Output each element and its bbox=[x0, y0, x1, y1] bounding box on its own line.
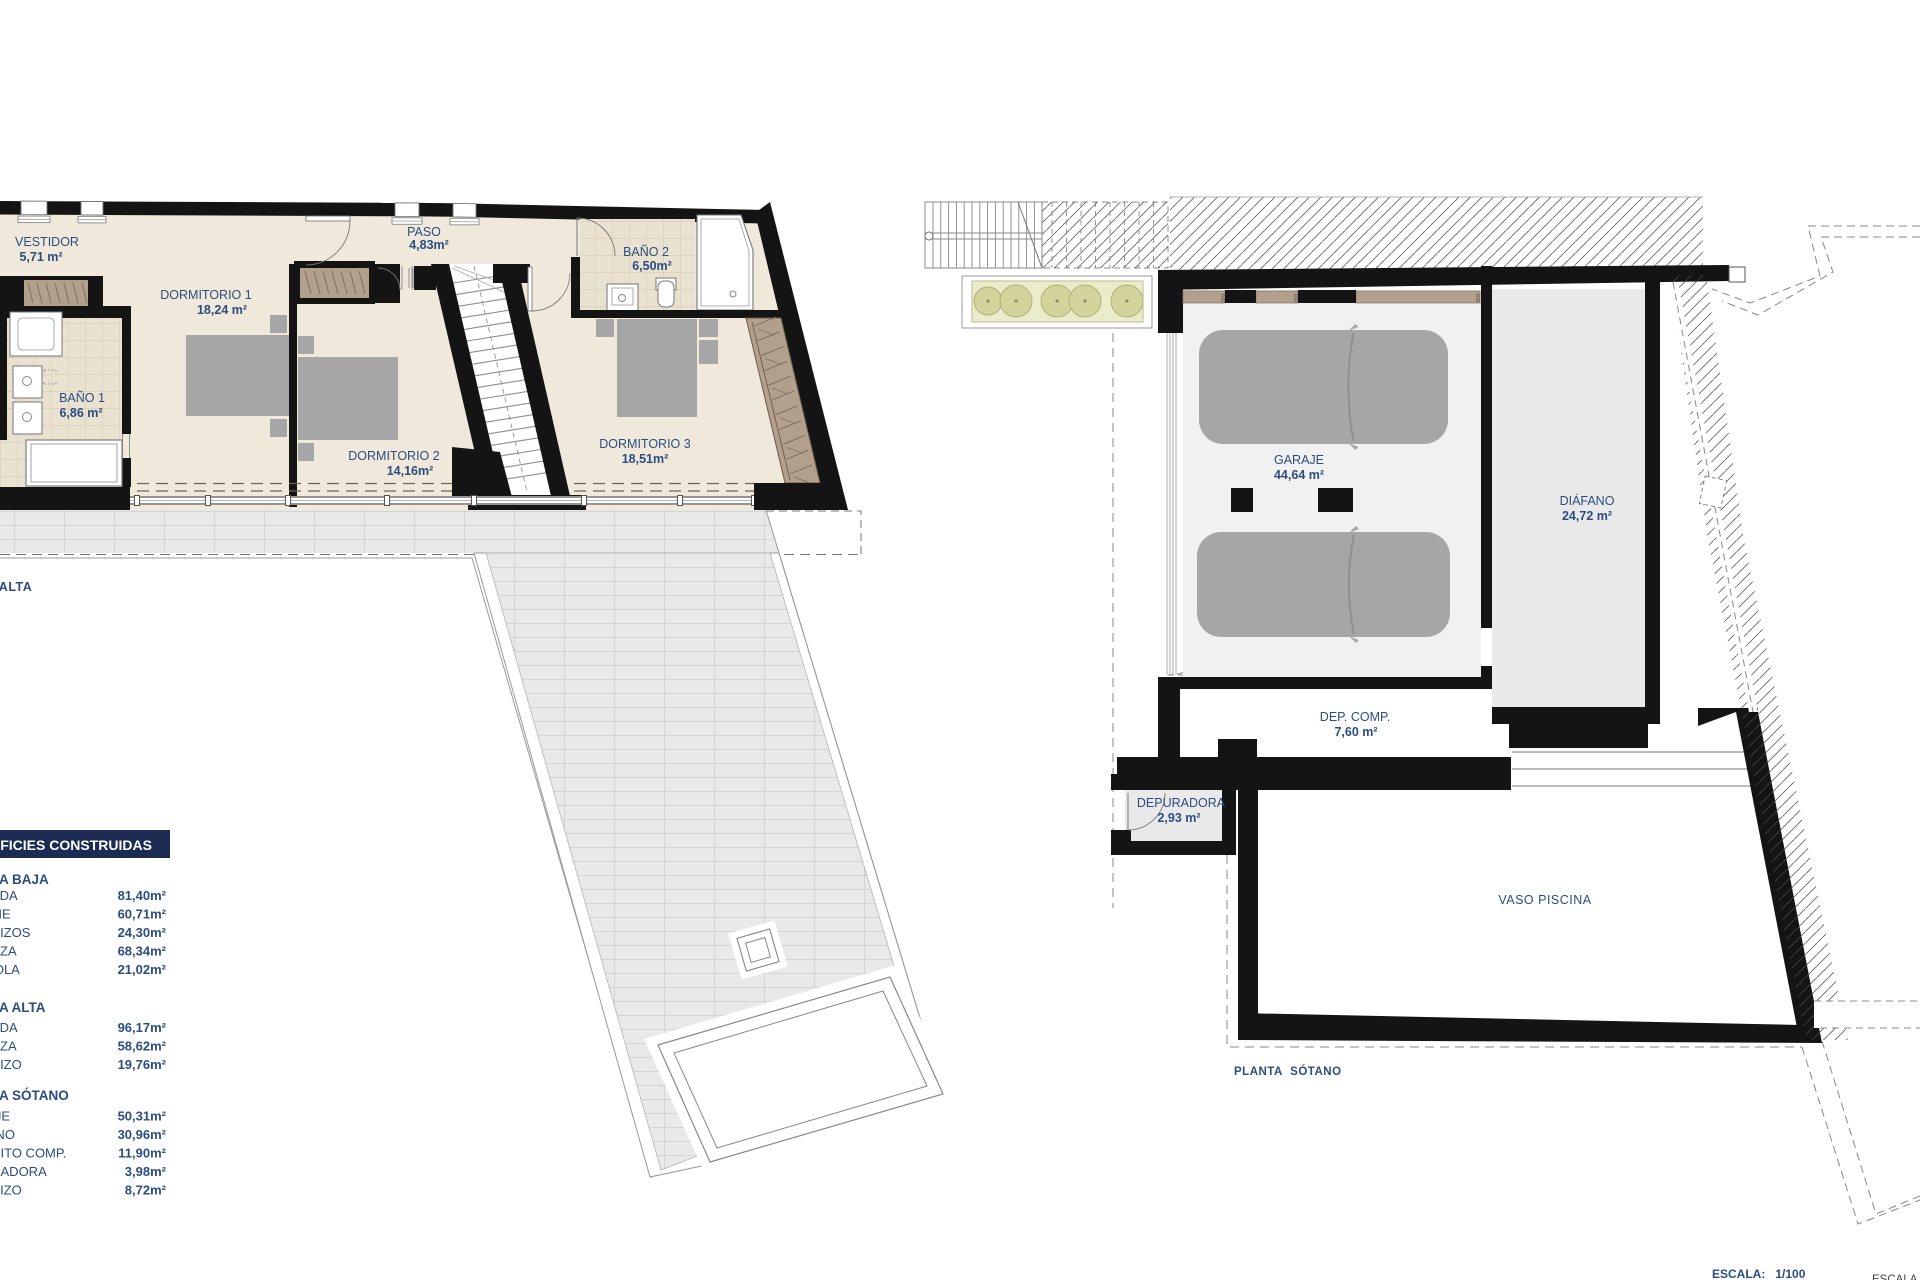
svg-text:8,72m²: 8,72m² bbox=[125, 1183, 167, 1198]
svg-text:SÓTANO: SÓTANO bbox=[0, 1127, 15, 1142]
svg-text:50,31m²: 50,31m² bbox=[118, 1109, 167, 1124]
svg-text:DIÁFANO: DIÁFANO bbox=[1560, 493, 1615, 508]
svg-text:24,72 m²: 24,72 m² bbox=[1562, 509, 1612, 523]
svg-text:DEPÓSITO COMP.: DEPÓSITO COMP. bbox=[0, 1146, 67, 1161]
svg-text:6,86 m²: 6,86 m² bbox=[59, 406, 102, 420]
svg-text:2,93 m²: 2,93 m² bbox=[1157, 811, 1200, 825]
svg-text:24,30m²: 24,30m² bbox=[118, 925, 167, 940]
svg-text:VIVIENDA: VIVIENDA bbox=[0, 888, 18, 903]
svg-text:PLANTA BAJA: PLANTA BAJA bbox=[0, 872, 49, 887]
svg-text:60,71m²: 60,71m² bbox=[118, 907, 167, 922]
svg-text:18,24 m²: 18,24 m² bbox=[197, 303, 247, 317]
svg-text:96,17m²: 96,17m² bbox=[118, 1020, 167, 1035]
svg-text:14,16m²: 14,16m² bbox=[387, 464, 434, 478]
svg-text:7,60 m²: 7,60 m² bbox=[1334, 725, 1377, 739]
svg-text:TERRAZA: TERRAZA bbox=[0, 1039, 17, 1054]
svg-text:58,62m²: 58,62m² bbox=[118, 1039, 167, 1054]
svg-text:19,76m²: 19,76m² bbox=[118, 1057, 167, 1072]
svg-text:VASO PISCINA: VASO PISCINA bbox=[1498, 893, 1591, 907]
svg-text:est.: est. bbox=[1474, 294, 1480, 304]
svg-text:PÉRGOLA: PÉRGOLA bbox=[0, 962, 20, 977]
svg-text:4,83m²: 4,83m² bbox=[409, 238, 449, 252]
svg-text:30,96m²: 30,96m² bbox=[118, 1127, 167, 1142]
svg-text:PLANTA SÓTANO: PLANTA SÓTANO bbox=[1234, 1065, 1342, 1078]
svg-text:PLANTA SÓTANO: PLANTA SÓTANO bbox=[0, 1088, 69, 1103]
svg-text:6,50m²: 6,50m² bbox=[632, 259, 672, 273]
svg-text:PLANTA ALTA: PLANTA ALTA bbox=[0, 1000, 46, 1015]
svg-text:VOLADIZO: VOLADIZO bbox=[0, 1057, 22, 1072]
svg-text:VOLADIZO: VOLADIZO bbox=[0, 1183, 22, 1198]
svg-text:BAÑO 2: BAÑO 2 bbox=[623, 245, 669, 259]
svg-text:GARAJE: GARAJE bbox=[0, 1109, 10, 1124]
svg-text:SUPERFICIES CONSTRUIDAS: SUPERFICIES CONSTRUIDAS bbox=[0, 837, 152, 853]
svg-text:est.: est. bbox=[1219, 294, 1225, 304]
svg-text:11,90m²: 11,90m² bbox=[118, 1146, 166, 1161]
svg-text:TERRAZA: TERRAZA bbox=[0, 944, 17, 959]
svg-text:est.: est. bbox=[1292, 294, 1298, 304]
svg-text:DEP. COMP.: DEP. COMP. bbox=[1320, 710, 1390, 724]
svg-text:DORMITORIO 1: DORMITORIO 1 bbox=[160, 288, 251, 302]
svg-text:DEPURADORA: DEPURADORA bbox=[1137, 796, 1226, 810]
svg-text:PORCHE: PORCHE bbox=[0, 907, 11, 922]
svg-text:DORMITORIO 2: DORMITORIO 2 bbox=[348, 449, 439, 463]
svg-text:5,71 m²: 5,71 m² bbox=[19, 250, 62, 264]
svg-text:VESTIDOR: VESTIDOR bbox=[15, 235, 79, 249]
svg-text:VOLADIZOS: VOLADIZOS bbox=[0, 925, 31, 940]
svg-text:DORMITORIO 3: DORMITORIO 3 bbox=[599, 437, 690, 451]
svg-text:44,64 m²: 44,64 m² bbox=[1274, 468, 1324, 482]
svg-text:18,51m²: 18,51m² bbox=[622, 452, 669, 466]
svg-text:ESCALA: ESCALA bbox=[1872, 1274, 1918, 1280]
svg-text:ESCALA: 1/100: ESCALA: 1/100 bbox=[1712, 1267, 1806, 1280]
svg-text:DEPURADORA: DEPURADORA bbox=[0, 1164, 47, 1179]
svg-text:81,40m²: 81,40m² bbox=[118, 888, 167, 903]
svg-text:VIVIENDA: VIVIENDA bbox=[0, 1020, 18, 1035]
svg-text:BAÑO 1: BAÑO 1 bbox=[59, 391, 105, 405]
svg-text:68,34m²: 68,34m² bbox=[118, 944, 167, 959]
svg-text:3,98m²: 3,98m² bbox=[125, 1164, 167, 1179]
svg-text:PASO: PASO bbox=[407, 225, 441, 239]
svg-text:GARAJE: GARAJE bbox=[1274, 453, 1324, 467]
svg-text:PLANTA ALTA: PLANTA ALTA bbox=[0, 580, 32, 594]
svg-text:21,02m²: 21,02m² bbox=[118, 962, 167, 977]
